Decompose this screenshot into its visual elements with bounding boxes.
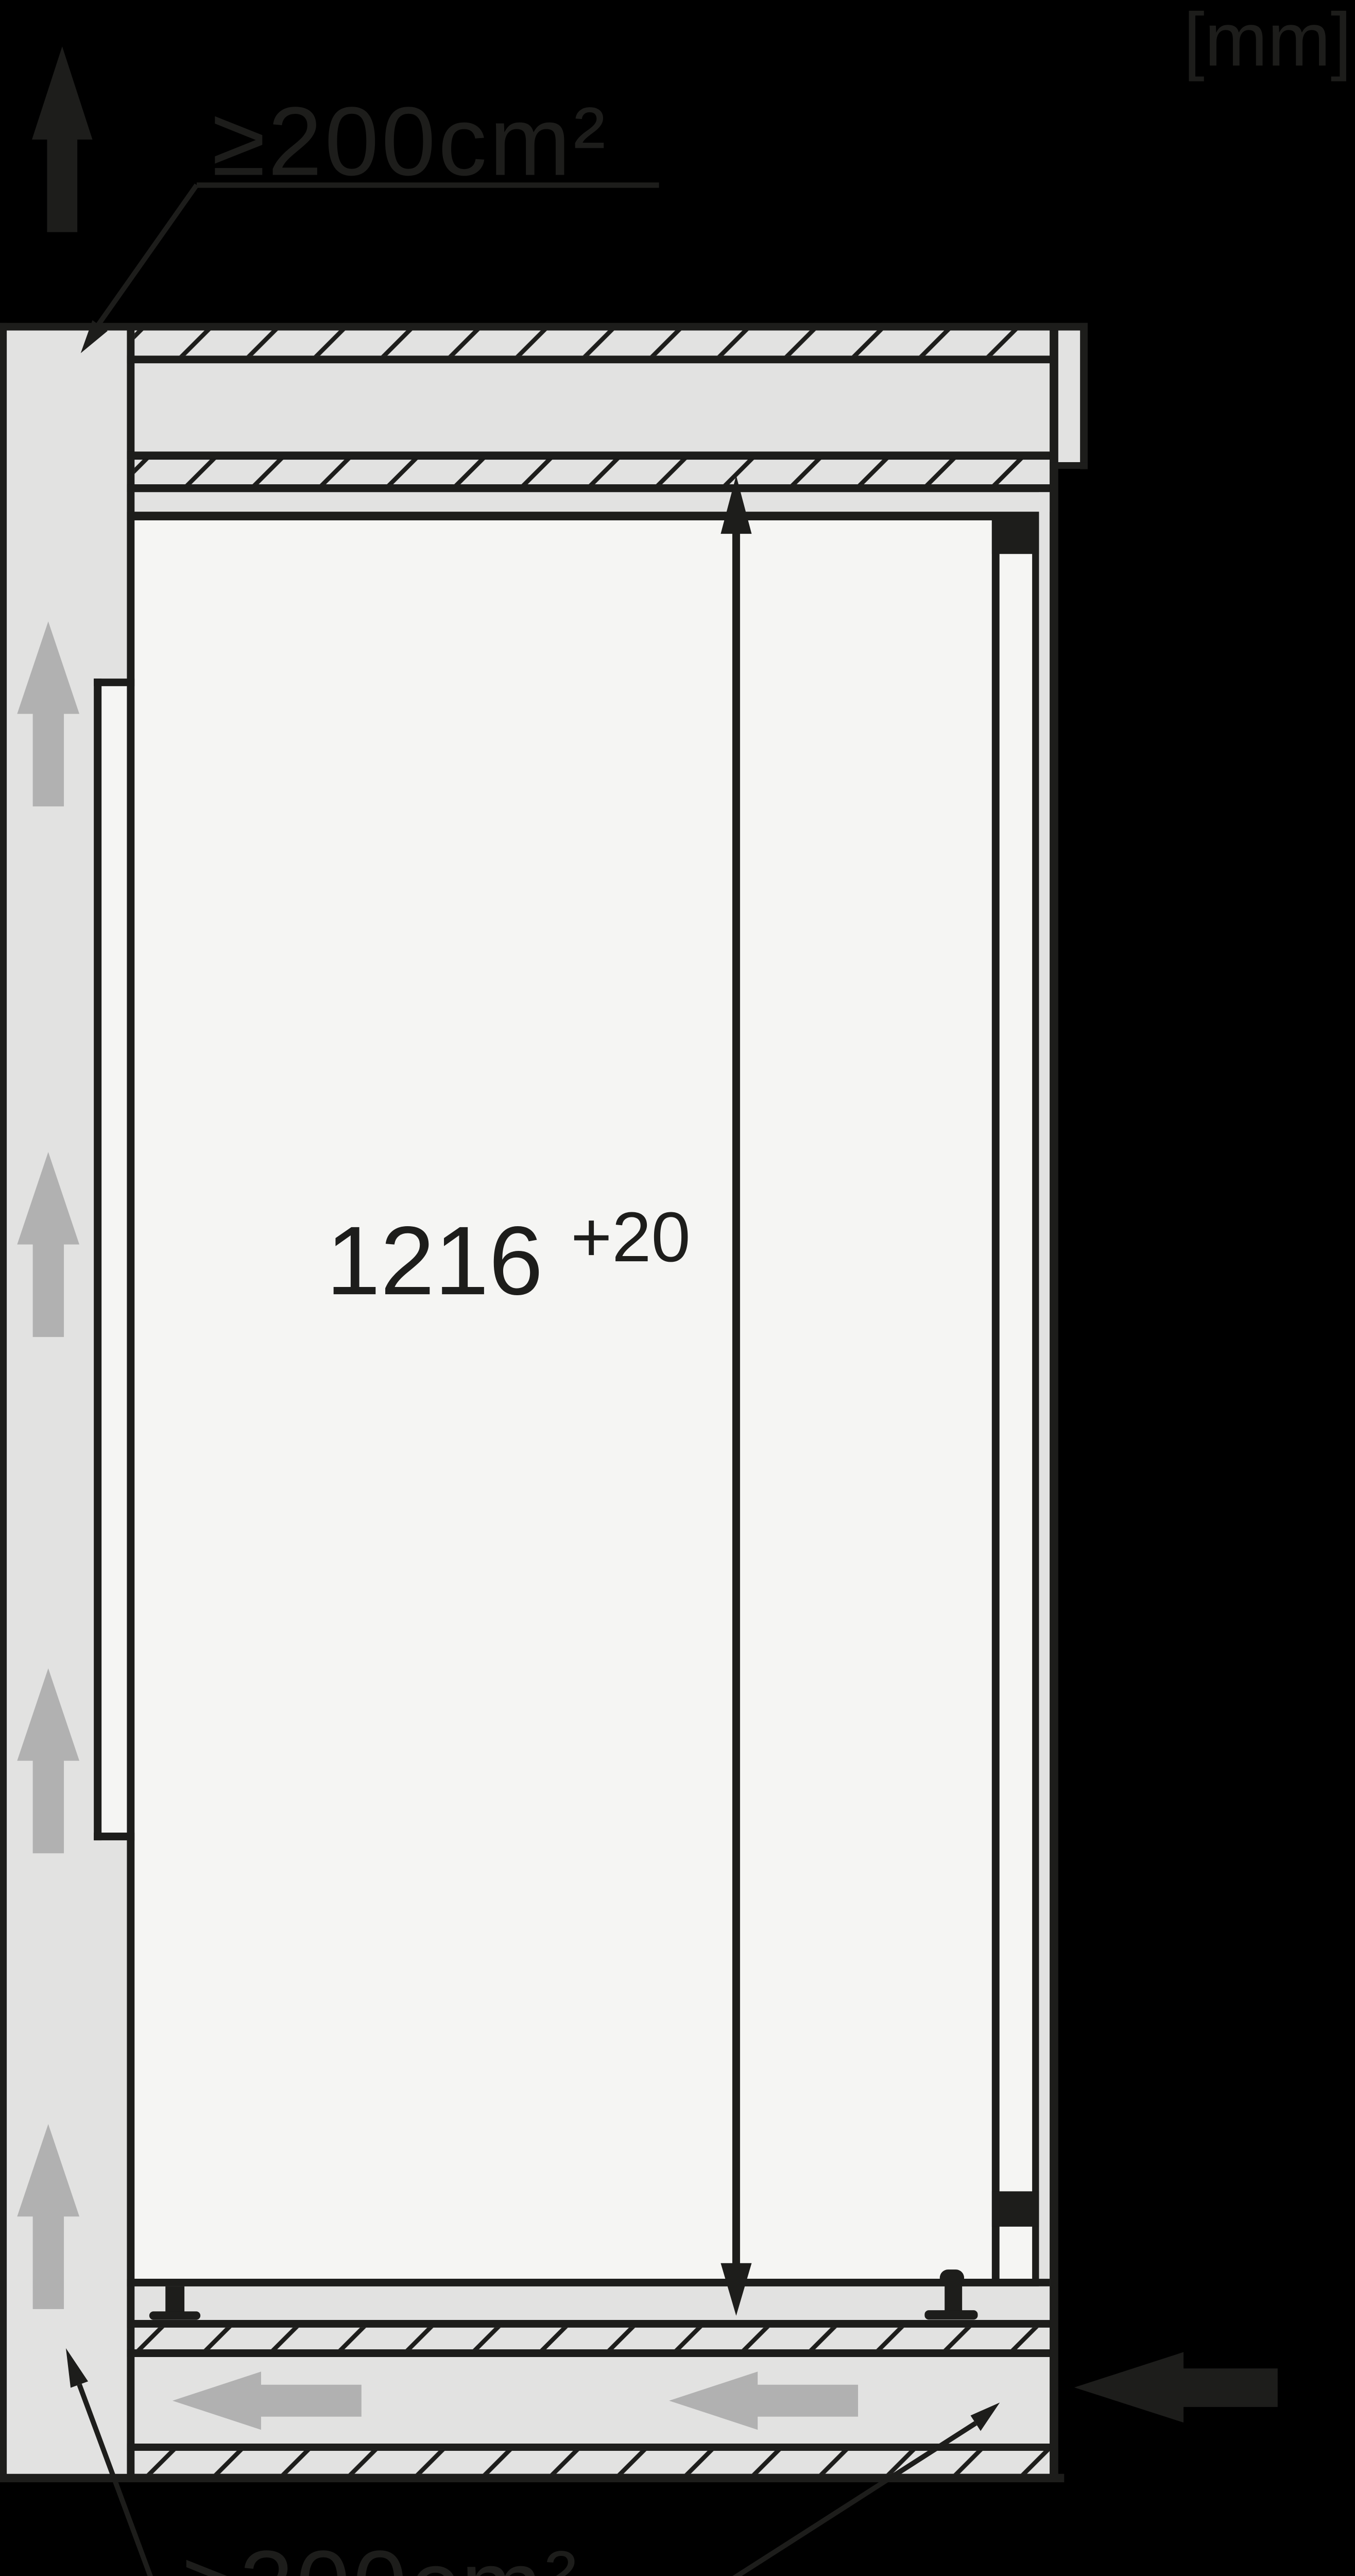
left-foot-stem: [165, 2286, 184, 2312]
door-bottom-bracket: [992, 2191, 1039, 2227]
door-left-line: [992, 520, 1000, 2279]
channel-right-wall: [127, 330, 134, 2475]
niche-height-value: 1216: [326, 1207, 543, 1315]
channel-left-wall: [0, 323, 7, 2482]
dimension-line: [732, 530, 740, 2265]
top-inner-panel-hatch: [134, 460, 1050, 484]
top-outer-line: [0, 323, 1088, 331]
channel-baffle: [101, 686, 127, 1833]
floor-panel-top-line: [127, 2320, 1050, 2328]
cabinet-structure: [0, 323, 1088, 2482]
niche-bottom-line: [127, 2279, 1050, 2286]
door-panel: [1000, 520, 1033, 2279]
right-foot-pad: [924, 2310, 977, 2319]
above-niche-gap: [134, 492, 1050, 512]
door-top-bracket: [992, 520, 1039, 554]
top-vent-label: ≥200cm²: [212, 87, 608, 196]
installation-diagram: [mm] ≥200cm² ≥200cm² 1216 +20: [0, 0, 1355, 2576]
bottom-outer-line: [0, 2474, 1064, 2482]
floor-panel-hatch: [134, 2328, 1050, 2349]
baffle-top-line: [94, 679, 134, 686]
floor-panel-bottom-line: [127, 2349, 1050, 2357]
top-duct-gap: [134, 363, 1050, 452]
right-side-gap: [1039, 492, 1050, 2320]
door-right-line: [1032, 520, 1039, 2279]
cap-right-line: [1080, 323, 1088, 469]
niche-height-tolerance: +20: [571, 1198, 691, 1277]
top-inner-panel-bottom-line: [127, 484, 1050, 492]
appliance-niche: [134, 520, 992, 2279]
baffle-left-line: [94, 679, 101, 1840]
bottom-vent-label: ≥200cm²: [183, 2531, 579, 2576]
top-outer-panel-hatch: [134, 330, 1050, 355]
left-foot-pad: [149, 2311, 200, 2319]
top-outer-panel-bottom-line: [127, 355, 1050, 363]
unit-label: [mm]: [1184, 0, 1351, 82]
bottom-panel-top-line: [127, 2444, 1050, 2451]
top-right-cap-fill: [1057, 330, 1080, 462]
niche-top-line: [127, 512, 1039, 520]
cap-bottom-line: [1050, 462, 1088, 469]
under-niche-gap: [134, 2286, 1050, 2320]
top-inner-panel-top-line: [127, 451, 1050, 459]
baffle-bottom-line: [94, 1833, 134, 1840]
right-foot-stem: [945, 2282, 962, 2311]
right-outer-wall: [1050, 330, 1058, 2482]
